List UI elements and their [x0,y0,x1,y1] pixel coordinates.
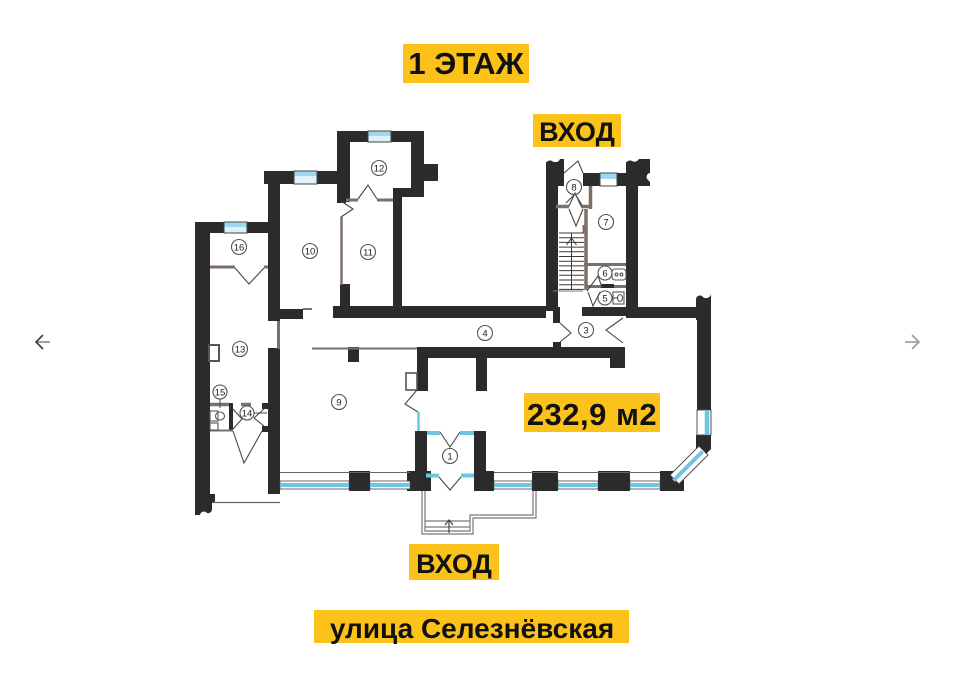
svg-text:8: 8 [571,183,576,194]
svg-text:1: 1 [447,452,452,463]
svg-text:ВХОД: ВХОД [539,117,615,147]
svg-text:ВХОД: ВХОД [416,549,492,579]
svg-text:4: 4 [482,329,487,340]
svg-text:13: 13 [235,345,246,356]
svg-text:7: 7 [603,218,608,229]
svg-text:9: 9 [336,398,341,409]
svg-text:5: 5 [602,294,607,305]
svg-text:10: 10 [305,247,316,258]
svg-text:232,9 м2: 232,9 м2 [527,397,657,432]
svg-text:14: 14 [242,409,253,420]
svg-text:12: 12 [374,164,385,175]
svg-text:11: 11 [363,248,373,259]
svg-text:улица Селезнёвская: улица Селезнёвская [330,613,614,644]
svg-text:3: 3 [583,326,588,337]
svg-text:6: 6 [602,269,607,280]
svg-text:1 ЭТАЖ: 1 ЭТАЖ [408,46,524,81]
svg-text:16: 16 [234,243,245,254]
svg-text:15: 15 [215,388,226,399]
